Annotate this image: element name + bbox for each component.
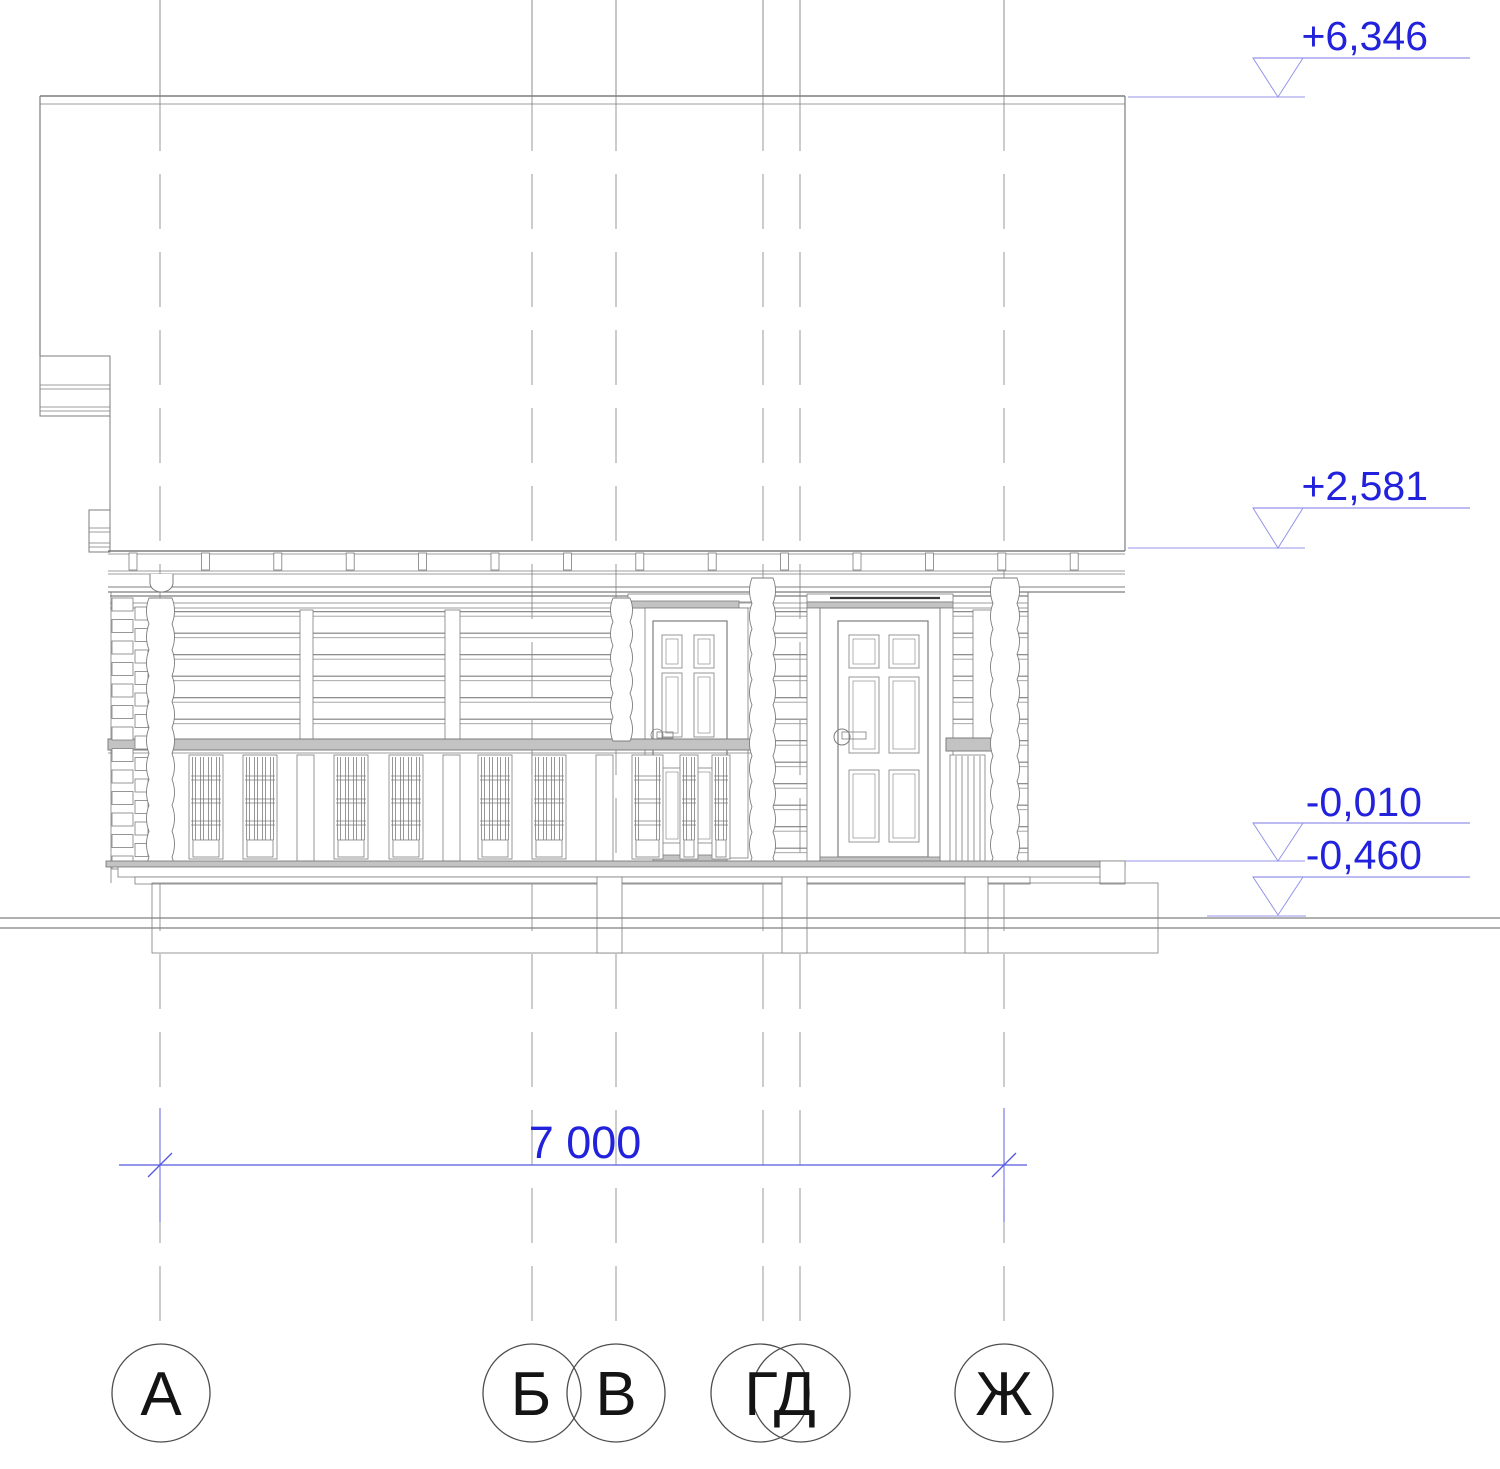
dimension-value: 7 000 (529, 1117, 642, 1168)
level-triangle-icon (1253, 58, 1303, 97)
door-panel (849, 677, 879, 753)
log-end (135, 801, 148, 814)
door-left-lintel (627, 601, 739, 608)
dimension-7000: 7 000 (119, 1108, 1027, 1222)
baluster-panel (389, 755, 423, 859)
baluster-panel (189, 755, 223, 859)
log-end (135, 844, 148, 857)
roof-outline (40, 96, 1125, 552)
level-triangle-icon (1253, 823, 1303, 861)
wall-strip-logs (773, 611, 807, 865)
door-right (807, 594, 953, 880)
baluster-panel (532, 755, 566, 859)
grid-bubble-label-gd: ГД (744, 1360, 815, 1429)
door-panel (889, 770, 919, 842)
rafter-peg (708, 553, 716, 570)
door-right-lintel (807, 602, 953, 608)
log-end (135, 672, 148, 685)
foundation-post (965, 877, 988, 953)
rafter-peg (346, 553, 354, 570)
door-right-handle-lever (842, 732, 866, 739)
log-end (112, 706, 133, 719)
foundation-post (597, 877, 622, 953)
notched-log-column (147, 598, 175, 883)
level-triangle-icon (1253, 508, 1303, 548)
log-end (112, 598, 133, 611)
grid-bubble-label-zh: Ж (975, 1360, 1032, 1429)
door-panel (849, 770, 879, 842)
handrail (108, 739, 752, 750)
door-panel (889, 677, 919, 753)
level-triangle-icon (1253, 877, 1303, 915)
log-end (135, 629, 148, 642)
elevation-marker-6346: +6,346 (1128, 13, 1470, 97)
elevation-value: +6,346 (1301, 13, 1428, 59)
railing-post (596, 755, 613, 861)
log-end (135, 779, 148, 792)
rafter-peg (201, 553, 209, 570)
ground-line (0, 918, 1500, 928)
door-panel-inset (853, 639, 875, 664)
baluster-panel (632, 755, 663, 859)
rafter-peg (853, 553, 861, 570)
log-end (135, 822, 148, 835)
grid-bubble-label-a: А (140, 1360, 182, 1429)
log-end (112, 684, 133, 697)
deck-beam (118, 867, 1115, 877)
railing-post (445, 610, 460, 739)
grid-bubble-label-v: В (595, 1360, 636, 1429)
log-end (112, 792, 133, 805)
log-end (135, 607, 148, 620)
door-panel-inset (893, 774, 915, 838)
log-end (112, 727, 133, 740)
corner-log-ends (112, 598, 148, 869)
log-end (112, 749, 133, 762)
rafter-pegs (129, 553, 1078, 570)
log-end (112, 620, 133, 633)
log-end (135, 715, 148, 728)
log-end (135, 758, 148, 771)
deck-band (106, 861, 1125, 867)
planked-panel (950, 755, 985, 862)
rafter-peg (998, 553, 1006, 570)
baluster-panel (334, 755, 368, 859)
notched-log-column (611, 598, 633, 741)
log-end (135, 736, 148, 749)
drawing-sheet: +6,346 +2,581 -0,010 -0,460 7 000 А Б (0, 0, 1500, 1469)
elevation-drawing-canvas: +6,346 +2,581 -0,010 -0,460 7 000 А Б (0, 0, 1500, 1469)
door-panel-inset (893, 681, 915, 749)
door-right-panels (849, 635, 919, 842)
rafter-peg (563, 553, 571, 570)
grid-bubble-label-b: Б (511, 1360, 552, 1429)
door-right-jamb (807, 608, 820, 880)
baluster-panel (712, 755, 730, 859)
rafter-peg (781, 553, 789, 570)
rafter-peg (419, 553, 427, 570)
log-end (112, 770, 133, 783)
railing-post (297, 755, 314, 861)
elevation-marker-2581: +2,581 (1128, 463, 1470, 548)
door-panel-inset (893, 639, 915, 664)
door-panel (889, 635, 919, 668)
railing-post (300, 610, 313, 739)
veranda-back-wall-logs (172, 611, 613, 741)
elevation-value: -0,010 (1306, 779, 1422, 825)
fascia-notch (150, 574, 173, 592)
log-end (112, 835, 133, 848)
log-end (135, 650, 148, 663)
rafter-peg (129, 553, 137, 570)
log-end (112, 813, 133, 826)
baluster-panel (243, 755, 277, 859)
log-end (112, 641, 133, 654)
purlin-end-lower (89, 510, 110, 552)
notched-log-column (991, 578, 1020, 883)
baluster-panel (478, 755, 512, 859)
baluster-panel (680, 755, 698, 859)
elevation-value: -0,460 (1306, 832, 1422, 878)
handrail-right-cap (946, 738, 992, 751)
rafter-peg (1070, 553, 1078, 570)
deck-end-cap (1100, 861, 1125, 884)
grid-bubbles: А Б В ГД Ж (112, 1344, 1053, 1442)
railing-post (443, 755, 460, 861)
door-panel-inset (853, 774, 875, 838)
elevation-value: +2,581 (1301, 463, 1428, 509)
rafter-peg (925, 553, 933, 570)
door-panel (849, 635, 879, 668)
railing-post (973, 610, 993, 738)
rafter-peg (274, 553, 282, 570)
elevation-marker-minus-0460: -0,460 (1207, 832, 1470, 916)
notched-log-column (750, 578, 776, 883)
rafter-peg (491, 553, 499, 570)
foundation-post (782, 877, 807, 953)
rafter-peg (636, 553, 644, 570)
log-end (112, 663, 133, 676)
foundation (152, 877, 1158, 953)
log-end (135, 693, 148, 706)
